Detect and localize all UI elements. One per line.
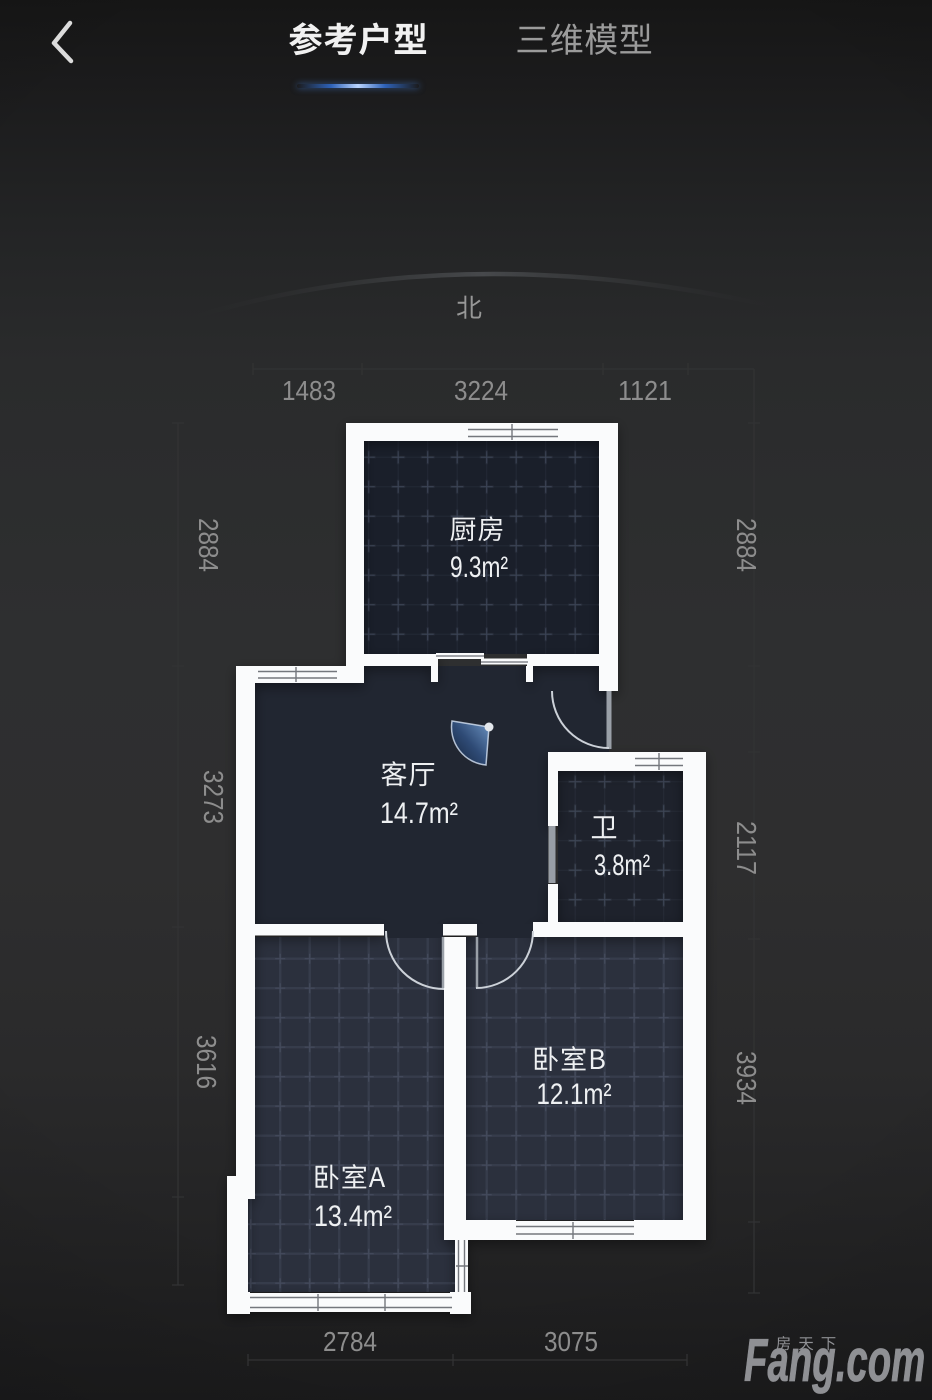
svg-text:2884: 2884 (731, 518, 762, 572)
svg-text:3616: 3616 (191, 1035, 222, 1089)
svg-text:Fang.com: Fang.com (744, 1326, 925, 1394)
svg-text:14.7m²: 14.7m² (380, 797, 458, 830)
svg-text:12.1m²: 12.1m² (537, 1078, 612, 1111)
svg-text:2117: 2117 (731, 821, 762, 875)
svg-text:2784: 2784 (323, 1326, 377, 1357)
svg-text:3075: 3075 (544, 1326, 598, 1357)
svg-text:13.4m²: 13.4m² (314, 1200, 392, 1233)
svg-text:9.3m²: 9.3m² (450, 551, 508, 584)
svg-text:1121: 1121 (618, 375, 672, 406)
svg-text:2884: 2884 (193, 518, 224, 572)
svg-text:3224: 3224 (454, 375, 508, 406)
svg-text:3273: 3273 (198, 770, 229, 824)
svg-text:1483: 1483 (282, 375, 336, 406)
svg-text:3.8m²: 3.8m² (594, 849, 650, 882)
svg-text:3934: 3934 (731, 1051, 762, 1105)
